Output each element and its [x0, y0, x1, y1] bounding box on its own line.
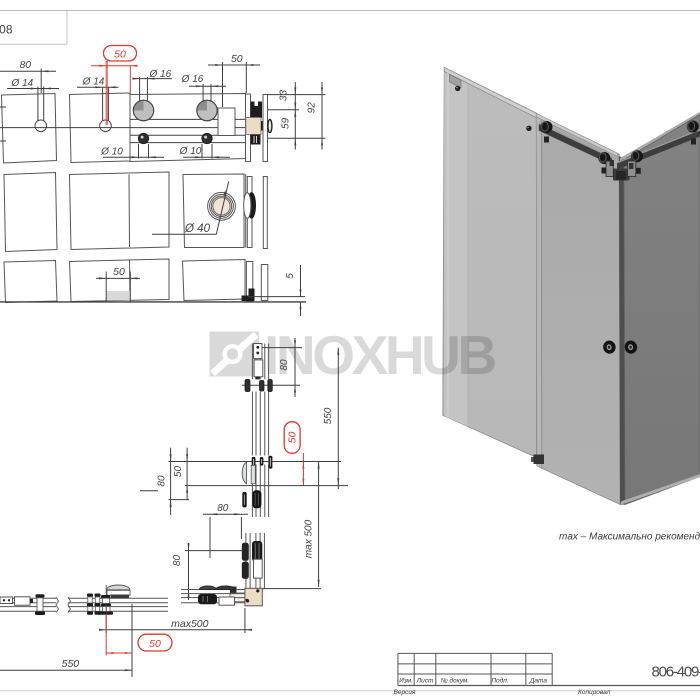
svg-text:Ø 10: Ø 10	[179, 146, 202, 157]
svg-text:Изм.: Изм.	[399, 678, 413, 685]
svg-text:5: 5	[285, 273, 296, 279]
svg-text:Ø 14: Ø 14	[82, 77, 105, 88]
svg-text:08: 08	[0, 23, 13, 37]
svg-text:80: 80	[217, 503, 229, 514]
svg-text:550: 550	[62, 658, 80, 670]
svg-text:Подп.: Подп.	[491, 677, 508, 685]
svg-text:80: 80	[172, 555, 183, 567]
svg-text:80: 80	[279, 359, 290, 371]
svg-text:806-409-4: 806-409-4	[652, 664, 700, 681]
svg-text:Ø 14: Ø 14	[11, 78, 34, 89]
svg-text:Ø 10: Ø 10	[100, 147, 123, 158]
svg-text:80: 80	[156, 475, 167, 487]
svg-text:50: 50	[149, 638, 161, 650]
svg-text:59: 59	[280, 117, 291, 129]
svg-text:92: 92	[307, 102, 318, 114]
svg-text:max – Максимально рекомендов: max – Максимально рекомендов	[559, 532, 700, 543]
svg-text:Копировал: Копировал	[578, 689, 611, 696]
svg-text:Ø 16: Ø 16	[181, 74, 204, 85]
svg-text:Ø 16: Ø 16	[148, 69, 171, 80]
svg-text:INOXHUB: INOXHUB	[264, 324, 496, 386]
svg-text:№ докум.: № докум.	[441, 677, 470, 685]
svg-text:33: 33	[279, 90, 290, 102]
svg-text:80: 80	[19, 59, 31, 71]
svg-text:max500: max500	[171, 618, 209, 630]
svg-text:550: 550	[323, 407, 334, 424]
svg-text:50: 50	[231, 53, 243, 65]
svg-text:max 500: max 500	[303, 519, 314, 558]
svg-text:Лист: Лист	[416, 678, 434, 685]
svg-text:Версия: Версия	[394, 689, 416, 696]
svg-text:50: 50	[113, 266, 125, 278]
svg-text:Дата: Дата	[529, 678, 548, 685]
svg-text:50: 50	[114, 49, 126, 61]
svg-text:50: 50	[173, 466, 184, 478]
svg-text:50: 50	[287, 432, 299, 444]
svg-text:Ø 40: Ø 40	[184, 223, 211, 235]
